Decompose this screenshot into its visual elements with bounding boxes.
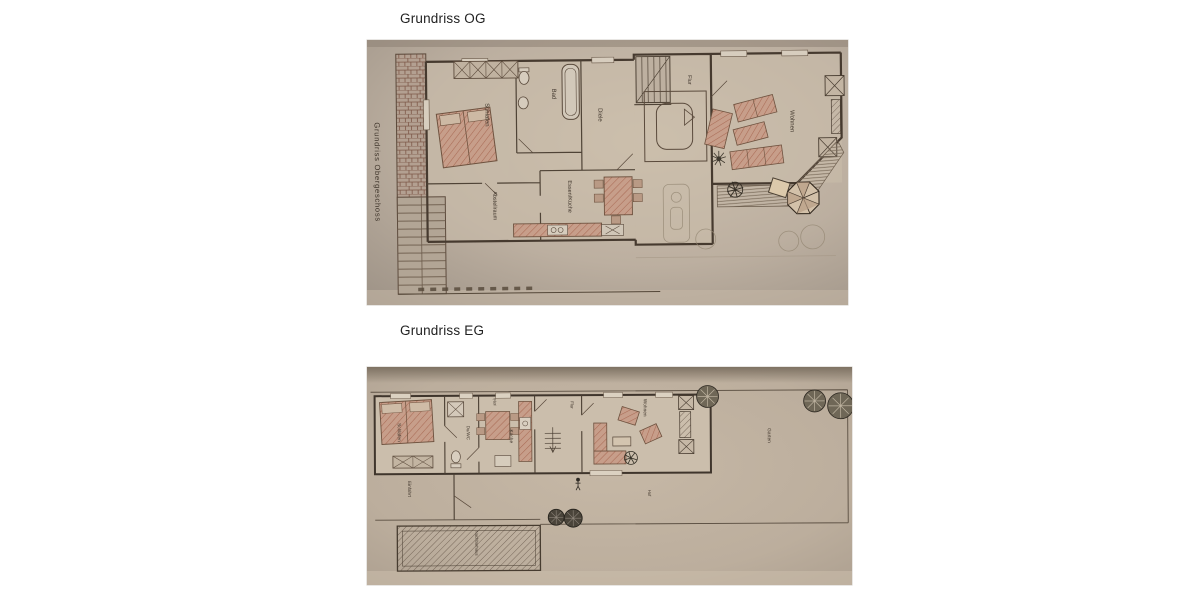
eg-floorplan-drawing: Schlafen Du/WC Küche <box>367 367 852 585</box>
bathtub-icon <box>562 64 580 119</box>
toilet-icon <box>451 451 461 468</box>
eg-neighbour-building: Nachbarhaus <box>397 525 540 571</box>
parasol-icon <box>787 182 819 214</box>
sink-icon <box>518 97 528 109</box>
kitchen-table-icon <box>486 412 510 440</box>
og-plan-title: Grundriss OG <box>400 11 486 26</box>
appliance-icon <box>495 456 511 467</box>
eg-label-einfahrt: Einfahrt <box>407 481 412 498</box>
eg-label-wohnen: Wohnen <box>642 399 648 417</box>
og-label-bad: Bad <box>550 89 556 100</box>
kitchen-counter-icon <box>514 223 624 237</box>
wardrobe-icon <box>454 61 518 79</box>
eg-label-hof: Hof <box>647 490 652 497</box>
eg-photo-top-edge <box>367 367 852 383</box>
og-floorplan-drawing: Grundriss Obergeschoss <box>367 40 848 305</box>
og-label-schlafen: Schlafen <box>483 103 489 126</box>
sideboard-icon <box>680 412 691 438</box>
og-label-wohnen: Wohnen <box>788 110 794 132</box>
og-label-diele: Diele <box>596 108 602 122</box>
tree-icon <box>804 390 826 412</box>
eg-label-schlafen: Schlafen <box>396 423 402 442</box>
og-label-essen-kueche: Essen/Küche <box>566 180 572 212</box>
eg-label-duwc: Du/WC <box>466 426 471 440</box>
tree-icon <box>564 509 582 527</box>
sofa-icon <box>594 451 626 464</box>
og-label-abstellraum: Abstellraum <box>491 191 497 221</box>
eg-label-flur-mitte: Flur <box>570 401 575 409</box>
bed-icon <box>380 400 434 445</box>
toilet-icon <box>519 68 529 85</box>
og-photo-top-edge <box>367 40 848 47</box>
eg-floorplan-image[interactable]: Schlafen Du/WC Küche <box>367 367 852 585</box>
og-floorplan-image[interactable]: Grundriss Obergeschoss <box>367 40 848 305</box>
tree-icon <box>548 509 564 525</box>
coffee-table-icon <box>613 437 631 446</box>
eg-label-nachbarhaus: Nachbarhaus <box>474 531 479 556</box>
eg-photo-bottom-strip <box>367 571 852 585</box>
eg-label-garten: Garten <box>766 428 772 443</box>
wardrobe-icon <box>393 456 433 468</box>
eg-plan-title: Grundriss EG <box>400 323 484 338</box>
kitchen-counter-icon <box>519 401 532 461</box>
eg-label-kueche: Küche <box>508 429 514 443</box>
og-label-flur: Flur <box>686 75 692 85</box>
og-side-label: Grundriss Obergeschoss <box>372 122 382 221</box>
sideboard-icon <box>831 100 840 134</box>
tree-icon <box>697 385 719 407</box>
stairs-icon <box>636 56 670 102</box>
tree-icon <box>828 393 852 419</box>
